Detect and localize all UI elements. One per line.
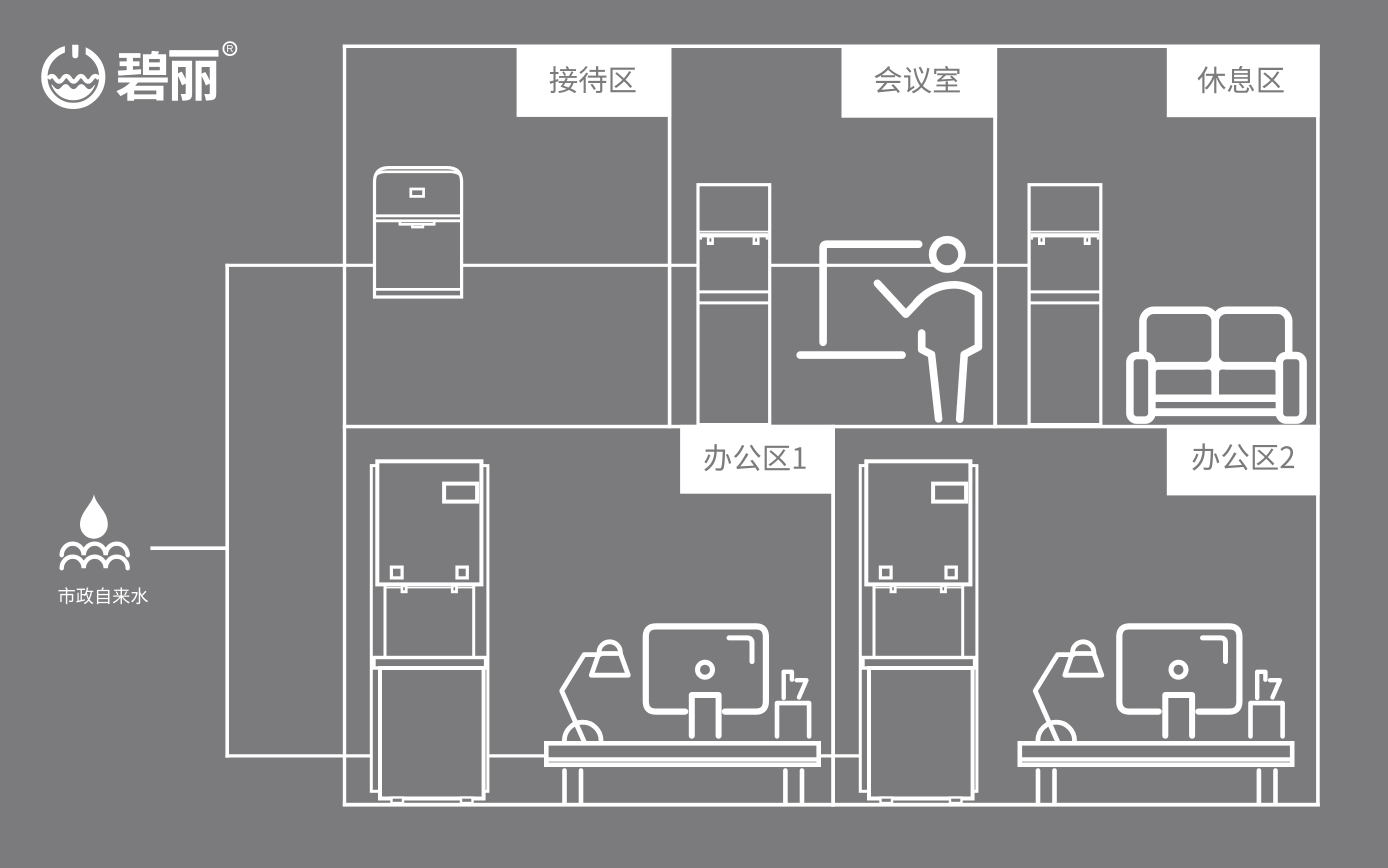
svg-text:R: R [226, 44, 233, 55]
